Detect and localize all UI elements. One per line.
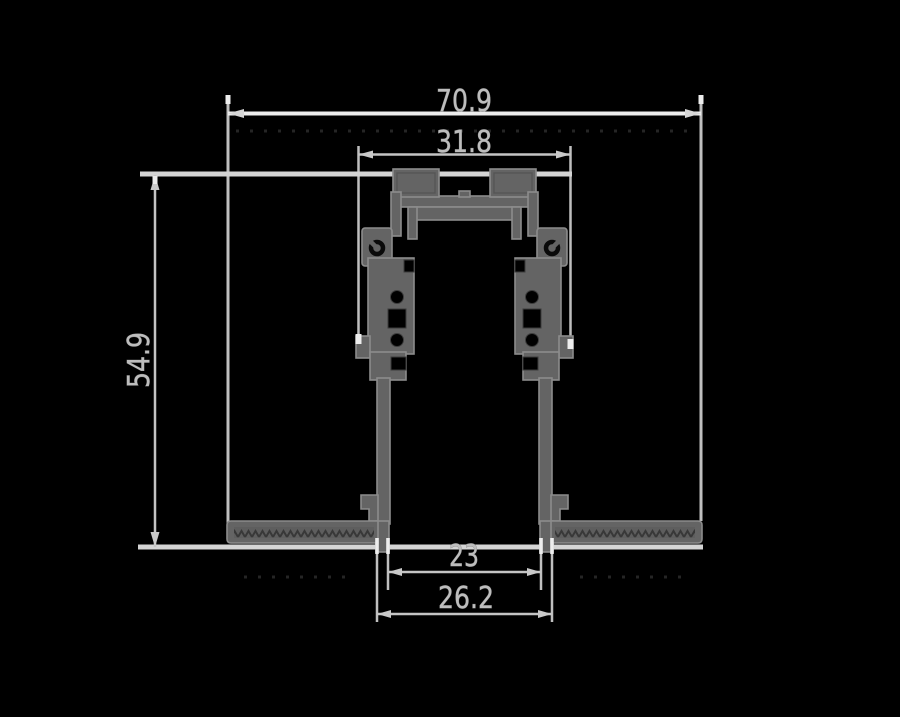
arrow-icon <box>377 610 391 618</box>
inner-upper-wall <box>408 207 417 239</box>
flange-knurl <box>234 527 374 538</box>
arrow-icon <box>527 568 541 576</box>
conductor-hole <box>391 334 404 347</box>
lower-channel-wall <box>377 378 390 524</box>
spring-hook <box>361 495 378 521</box>
inner-notch <box>404 260 414 272</box>
drawing-canvas: 70.9 31.8 54.9 23 26.2 <box>0 0 900 717</box>
arrow-icon <box>388 568 402 576</box>
dim-channel-outer-label: 26.2 <box>438 581 494 616</box>
profile-half <box>227 169 439 552</box>
arrow-icon <box>685 109 701 118</box>
dim-overall-width-label: 70.9 <box>436 84 492 119</box>
arrow-icon <box>359 151 374 159</box>
dim-channel-inner-label: 23 <box>449 539 479 574</box>
transition-slot <box>391 357 406 370</box>
profile-half-mirrored <box>490 169 702 552</box>
extrusion-profile <box>227 169 702 552</box>
extension-feet <box>153 95 704 554</box>
center-nub <box>459 191 470 197</box>
profile-cross-section-drawing: 70.9 31.8 54.9 23 26.2 <box>0 0 900 717</box>
dim-body-width-label: 31.8 <box>436 125 492 160</box>
dim-height-label: 54.9 <box>122 332 157 388</box>
conductor-hole <box>391 291 404 304</box>
arrow-icon <box>228 109 244 118</box>
arrow-icon <box>556 151 571 159</box>
arrow-icon <box>538 610 552 618</box>
conductor-slot <box>388 309 406 328</box>
